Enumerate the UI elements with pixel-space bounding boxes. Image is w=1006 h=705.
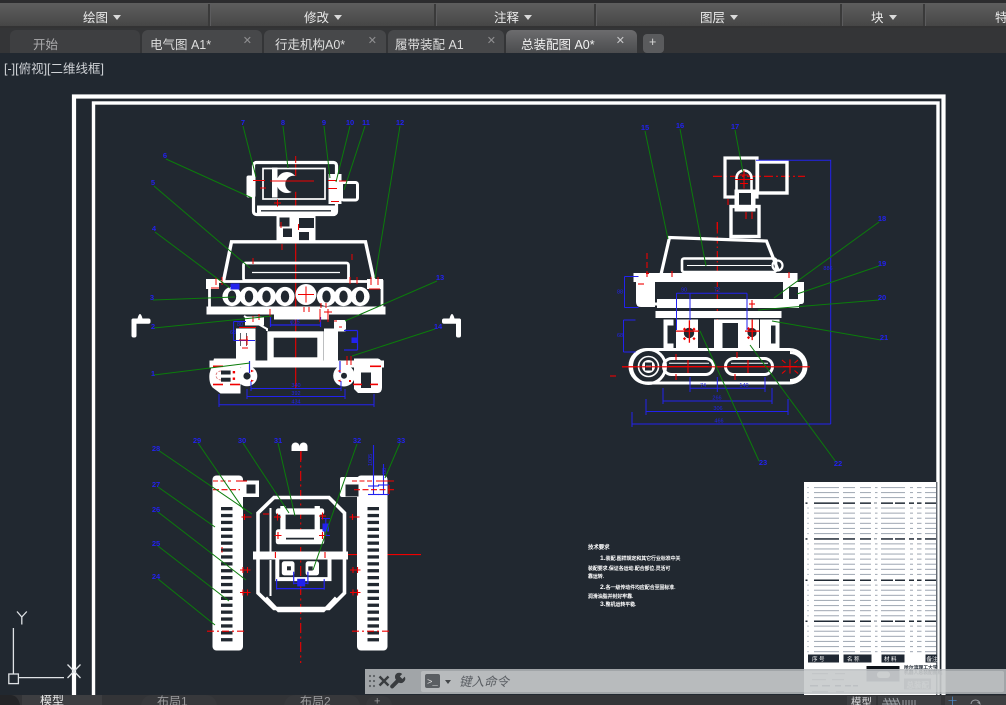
svg-text:装配要求.保证各运动.配合部位.灵活可: 装配要求.保证各运动.配合部位.灵活可	[587, 565, 670, 572]
svg-text:68: 68	[617, 333, 623, 339]
svg-text:29: 29	[193, 436, 201, 445]
svg-text:键入命令: 键入命令	[459, 675, 511, 689]
svg-text:3: 3	[150, 293, 154, 302]
svg-text:24: 24	[152, 572, 161, 581]
svg-text:140: 140	[739, 383, 748, 389]
svg-text:15: 15	[641, 123, 649, 132]
svg-text:32: 32	[353, 436, 361, 445]
svg-text:23: 23	[759, 458, 767, 467]
svg-text:10: 10	[346, 118, 354, 127]
svg-text:1005: 1005	[368, 454, 374, 466]
svg-text:20: 20	[878, 293, 886, 302]
svg-text:72: 72	[714, 288, 720, 294]
svg-text:392: 392	[291, 391, 300, 397]
svg-text:27: 27	[152, 480, 160, 489]
svg-text:3.整机运转平稳.: 3.整机运转平稳.	[600, 601, 637, 608]
svg-text:2.各一级传动件均应配合至固标准.: 2.各一级传动件均应配合至固标准.	[600, 584, 676, 591]
svg-text:466: 466	[714, 419, 723, 425]
svg-text:布局1: 布局1	[157, 695, 188, 705]
svg-text:序 号: 序 号	[812, 655, 825, 663]
svg-text:30: 30	[238, 436, 246, 445]
svg-text:名 称: 名 称	[847, 655, 860, 663]
svg-text:材 料: 材 料	[884, 655, 897, 663]
svg-text:90: 90	[681, 288, 687, 294]
svg-text:6: 6	[163, 151, 167, 160]
svg-text:18: 18	[878, 214, 886, 223]
svg-text:2: 2	[151, 322, 155, 331]
svg-text:14: 14	[434, 322, 443, 331]
svg-text:布局2: 布局2	[300, 695, 331, 705]
svg-text:28: 28	[152, 444, 160, 453]
svg-text:润滑油脂并封好牢靠.: 润滑油脂并封好牢靠.	[588, 593, 634, 600]
svg-text:33: 33	[397, 436, 405, 445]
svg-text:13: 13	[436, 273, 444, 282]
svg-text:φ15: φ15	[290, 320, 300, 326]
svg-text:25: 25	[152, 539, 160, 548]
svg-text:技术要求: 技术要求	[588, 543, 610, 551]
svg-text:16: 16	[676, 121, 684, 130]
svg-text:模型: 模型	[851, 696, 872, 705]
svg-text:340: 340	[291, 383, 300, 389]
svg-text:19: 19	[878, 259, 886, 268]
svg-text:88: 88	[617, 290, 623, 296]
svg-text:9: 9	[322, 118, 326, 127]
svg-text:26: 26	[152, 505, 160, 514]
svg-text:模型: 模型	[40, 695, 64, 705]
svg-text:>_: >_	[427, 678, 438, 688]
svg-text:306: 306	[713, 406, 722, 412]
svg-text:886: 886	[823, 266, 832, 272]
svg-text:8: 8	[281, 118, 285, 127]
svg-text:74: 74	[700, 383, 706, 389]
svg-text:11: 11	[362, 118, 370, 127]
svg-text:[-][俯视][二维线框]: [-][俯视][二维线框]	[4, 61, 104, 76]
svg-text:22: 22	[834, 459, 842, 468]
svg-text:31: 31	[274, 436, 282, 445]
svg-text:7: 7	[241, 118, 245, 127]
svg-text:21: 21	[880, 333, 888, 342]
svg-text:1.装配.图样规定和其它行业标准中关: 1.装配.图样规定和其它行业标准中关	[600, 555, 681, 562]
svg-text:68: 68	[230, 330, 236, 336]
svg-text:十: 十	[948, 696, 957, 705]
svg-text:12: 12	[396, 118, 404, 127]
svg-text:266: 266	[712, 396, 721, 402]
svg-text:5: 5	[151, 178, 155, 187]
svg-text:1: 1	[151, 369, 155, 378]
svg-text:备注: 备注	[927, 655, 939, 663]
svg-text:靠运转.: 靠运转.	[588, 573, 605, 580]
svg-text:434: 434	[291, 400, 300, 406]
svg-text:+: +	[374, 696, 380, 705]
svg-text:17: 17	[731, 122, 739, 131]
